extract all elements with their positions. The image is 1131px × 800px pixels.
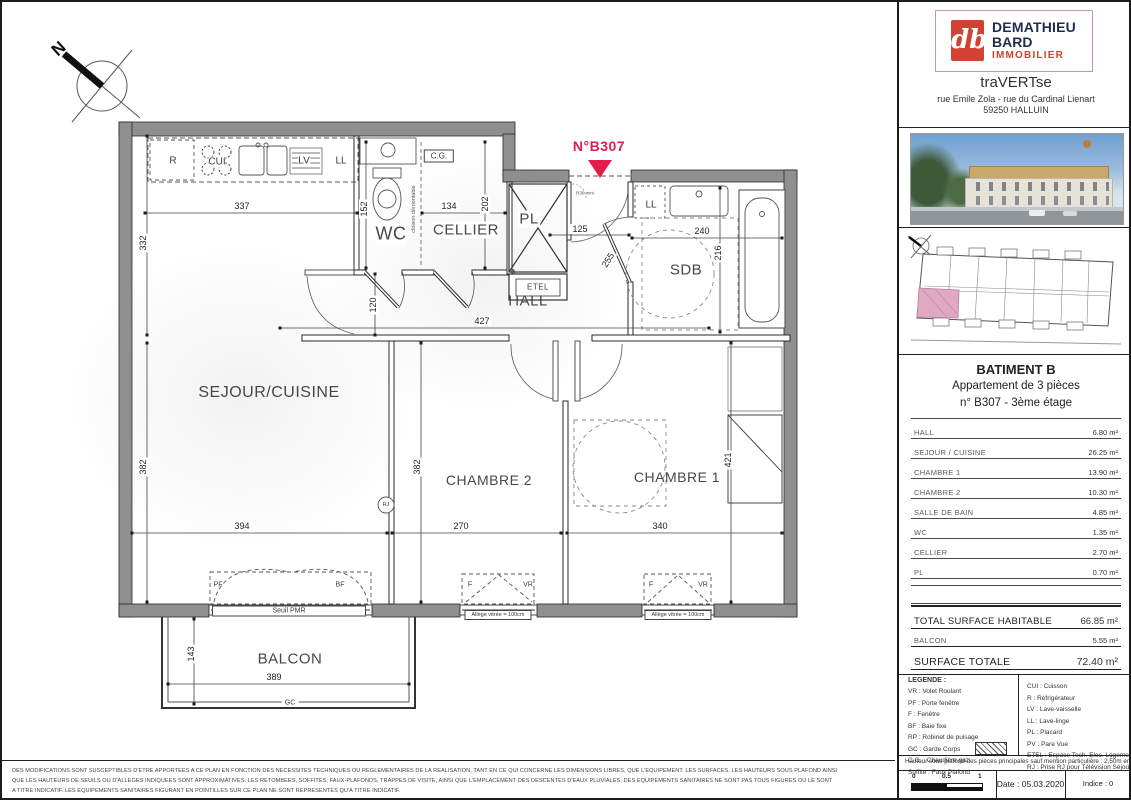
total-balcon-label: BALCON: [914, 636, 947, 645]
pl-closet: [509, 184, 567, 272]
room-label-pl: PL: [517, 211, 540, 228]
total-balcon-row: BALCON 5.55 m²: [911, 629, 1121, 647]
room-label-chambre2: CHAMBRE 2: [446, 472, 532, 488]
building-windows: [967, 182, 1109, 191]
boiler-label: C.G.: [424, 150, 454, 163]
key-plan-highlighted-unit: [917, 288, 959, 318]
legend-item: PF : Porte fenêtre: [908, 698, 978, 710]
legend-item: F : Fenêtre: [908, 709, 978, 721]
title-block-sidebar: db DEMATHIEU BARD IMMOBILIER traVERTse r…: [897, 2, 1131, 798]
apartment-type: Appartement de 3 pièces: [899, 380, 1131, 392]
total-habitable-row: TOTAL SURFACE HABITABLE 66.85 m²: [911, 607, 1121, 629]
date-cell: Date : 05.03.2020: [996, 770, 1065, 798]
total-habitable-label: TOTAL SURFACE HABITABLE: [914, 616, 1052, 627]
key-plan: [903, 230, 1129, 352]
allege-label-ch2: Allège vitrée = 100cm: [464, 610, 531, 620]
legend-item: R : Réfrigérateur: [1027, 693, 1131, 705]
sidewalk: [911, 207, 1123, 211]
dim-394: 394: [232, 521, 251, 531]
project-name: traVERTse: [899, 74, 1131, 91]
total-surface-value: 72.40 m²: [1077, 656, 1118, 668]
project-address-1: rue Emile Zola - rue du Cardinal Lienart: [899, 94, 1131, 104]
empty-table-rows: [911, 568, 1121, 604]
legend-item: CUI : Cuisson: [1027, 681, 1131, 693]
disclaimer-line-2: QUE LES HAUTEURS DE SEUILS OU D'ALLEGES …: [12, 778, 832, 784]
dim-202: 202: [480, 194, 490, 213]
washer-label-sdb: LL: [645, 200, 656, 211]
project-address-2: 59250 HALLUIN: [899, 105, 1131, 115]
room-label-hall: HALL: [508, 293, 548, 310]
dim-240: 240: [692, 226, 711, 236]
scale-bar-graphic: [911, 783, 983, 791]
room-label-balcon: BALCON: [258, 651, 323, 668]
road: [911, 210, 1123, 224]
chambre1-fixtures: [573, 347, 782, 513]
legend-item: LV : Lave-vaisselle: [1027, 704, 1131, 716]
room-area-table: HALL 6.80 m² SEJOUR / CUISINE 26.25 m² C…: [911, 418, 1121, 579]
legend-item: LL : Lave-linge: [1027, 716, 1131, 728]
scale-tick-05: 0.5: [942, 773, 951, 780]
legend-title: LEGENDE :: [908, 677, 946, 684]
unit-number-label: N°B307: [573, 138, 625, 154]
dim-134: 134: [439, 201, 458, 211]
scale-bar: 0 0.5 1: [899, 770, 996, 798]
legend-item: PL : Placard: [1027, 727, 1131, 739]
hot-air-balloon-icon: [1083, 140, 1091, 148]
indice-cell: Indice : 0: [1065, 770, 1131, 798]
car: [1063, 211, 1077, 216]
allege-label-ch1: Allège vitrée = 100cm: [644, 610, 711, 620]
table-row: CHAMBRE 1 13.90 m²: [911, 459, 1121, 479]
dim-340: 340: [650, 521, 669, 531]
rj-label: RJ: [383, 502, 390, 508]
building-windows: [967, 196, 1109, 205]
floor-plan-drawing: [2, 2, 895, 762]
seuil-pmr-label: Seuil PMR: [212, 606, 366, 617]
room-label-chambre1: CHAMBRE 1: [634, 469, 720, 485]
cooktop-label: CUI: [208, 157, 225, 168]
dim-382-left: 382: [138, 457, 148, 476]
dim-337: 337: [232, 201, 251, 211]
etel-label: ETEL: [527, 283, 549, 292]
totals-table: TOTAL SURFACE HABITABLE 66.85 m² BALCON …: [911, 605, 1121, 670]
table-row: CHAMBRE 2 10.30 m²: [911, 479, 1121, 499]
legend-item: GC : Garde Corps: [908, 744, 978, 756]
dim-421: 421: [723, 450, 733, 469]
fridge-label: R: [169, 156, 176, 167]
dim-216: 216: [713, 243, 723, 262]
window-label-f-ch2: F: [468, 582, 472, 589]
dim-427: 427: [472, 316, 491, 326]
room-label-sejour: SEJOUR/CUISINE: [198, 384, 339, 402]
dim-382-right: 382: [412, 457, 422, 476]
car: [1029, 210, 1045, 216]
kitchen-fixtures: [148, 138, 358, 182]
window-label-vr-ch1: VR: [698, 582, 708, 589]
floor-plan-sheet: N N°B307 SEJOUR/CUISINE CHAMBRE 2 CHAMBR…: [0, 0, 1131, 800]
washer-label-kitchen: LL: [335, 156, 346, 167]
table-row: SEJOUR / CUISINE 26.25 m²: [911, 439, 1121, 459]
logo-monogram-icon: db: [951, 20, 984, 61]
window-label-vr-ch2: VR: [523, 582, 533, 589]
table-row: SALLE DE BAIN 4.85 m²: [911, 499, 1121, 519]
brand-name-1: DEMATHIEU: [992, 19, 1076, 35]
table-row: HALL 6.80 m²: [911, 419, 1121, 439]
disclaimer-line-3: A TITRE INDICATIF. LES EQUIPEMENTS SANIT…: [12, 788, 400, 794]
window-label-pf: PF: [214, 582, 223, 589]
building-rendering: [910, 133, 1124, 225]
brand-name-3: IMMOBILIER: [992, 50, 1064, 61]
building-title: BATIMENT B: [899, 362, 1131, 377]
dishwasher-label: LV: [298, 156, 310, 167]
room-label-sdb: SDB: [668, 262, 704, 279]
r30-mini-label: R30 mini: [576, 191, 594, 196]
gc-label: GC: [282, 700, 299, 707]
dim-270: 270: [451, 521, 470, 531]
disclaimer-line-1: DES MODIFICATIONS SONT SUSCEPTIBLES D'ET…: [12, 768, 837, 774]
ceiling-height-note: Hauteur sous plafond des pièces principa…: [905, 758, 1131, 765]
legend-item: PV : Pare Vue: [1027, 739, 1131, 751]
total-habitable-value: 66.85 m²: [1081, 616, 1119, 627]
dim-389: 389: [264, 672, 283, 682]
chambre2-window: [460, 574, 537, 615]
footer-divider: [2, 760, 895, 761]
apartment-unit: n° B307 - 3ème étage: [899, 397, 1131, 409]
dim-332: 332: [138, 233, 148, 252]
total-surface-label: SURFACE TOTALE: [914, 656, 1010, 668]
legend: LEGENDE : VR : Volet Roulant PF : Porte …: [899, 674, 1131, 755]
entrance-arrow-icon: [588, 160, 612, 178]
table-row: CELLIER 2.70 m²: [911, 539, 1121, 559]
room-label-wc: WC: [376, 224, 407, 245]
north-compass-icon: [64, 50, 140, 122]
dim-125: 125: [570, 224, 589, 234]
cloison-demontable-label: cloison démontable: [411, 185, 417, 232]
brand-name-2: BARD: [992, 34, 1032, 50]
window-label-bf: BF: [336, 582, 345, 589]
dim-152: 152: [359, 199, 369, 218]
total-balcon-value: 5.55 m²: [1093, 636, 1118, 645]
chambre1-window: [642, 574, 714, 615]
dim-143: 143: [186, 644, 196, 663]
table-row: WC 1.35 m²: [911, 519, 1121, 539]
logo: db DEMATHIEU BARD IMMOBILIER: [935, 10, 1093, 72]
legend-item: VR : Volet Roulant: [908, 686, 978, 698]
legend-item: BF : Baie fixe: [908, 721, 978, 733]
room-label-cellier: CELLIER: [433, 222, 499, 239]
total-surface-row: SURFACE TOTALE 72.40 m²: [911, 647, 1121, 670]
window-label-f-ch1: F: [649, 582, 653, 589]
scale-tick-1: 1: [978, 773, 982, 780]
scale-tick-0: 0: [912, 773, 916, 780]
legend-item: RP : Robinet de puisage: [908, 732, 978, 744]
dim-120: 120: [368, 295, 378, 314]
